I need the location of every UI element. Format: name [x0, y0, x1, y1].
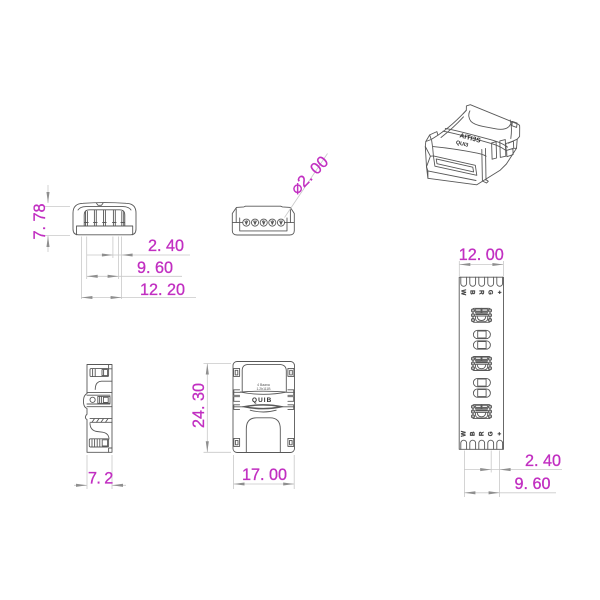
svg-text:17. 00: 17. 00 — [242, 466, 287, 484]
svg-text:7. 2: 7. 2 — [88, 470, 113, 488]
svg-text:B: B — [469, 290, 476, 295]
svg-text:7. 78: 7. 78 — [31, 203, 49, 239]
svg-text:+: + — [496, 290, 503, 294]
svg-text:12. 00: 12. 00 — [459, 246, 504, 264]
svg-text:R: R — [479, 431, 486, 436]
svg-text:QUIB: QUIB — [252, 397, 272, 404]
svg-text:R: R — [478, 290, 485, 295]
svg-text:9. 60: 9. 60 — [137, 259, 173, 277]
svg-text:2. 40: 2. 40 — [525, 452, 561, 470]
svg-text:W: W — [461, 431, 468, 437]
svg-text:⌀2. 00: ⌀2. 00 — [287, 153, 332, 198]
svg-text:B: B — [470, 431, 477, 436]
svg-text:G: G — [487, 290, 494, 295]
svg-text:9. 60: 9. 60 — [515, 475, 551, 493]
svg-text:12. 20: 12. 20 — [140, 281, 185, 299]
svg-text:1.2b111B: 1.2b111B — [256, 387, 271, 391]
svg-text:2. 40: 2. 40 — [148, 237, 184, 255]
svg-text:G: G — [488, 431, 495, 436]
svg-text:24. 30: 24. 30 — [190, 383, 208, 428]
svg-text:W: W — [460, 289, 467, 295]
svg-text:+: + — [497, 432, 504, 436]
